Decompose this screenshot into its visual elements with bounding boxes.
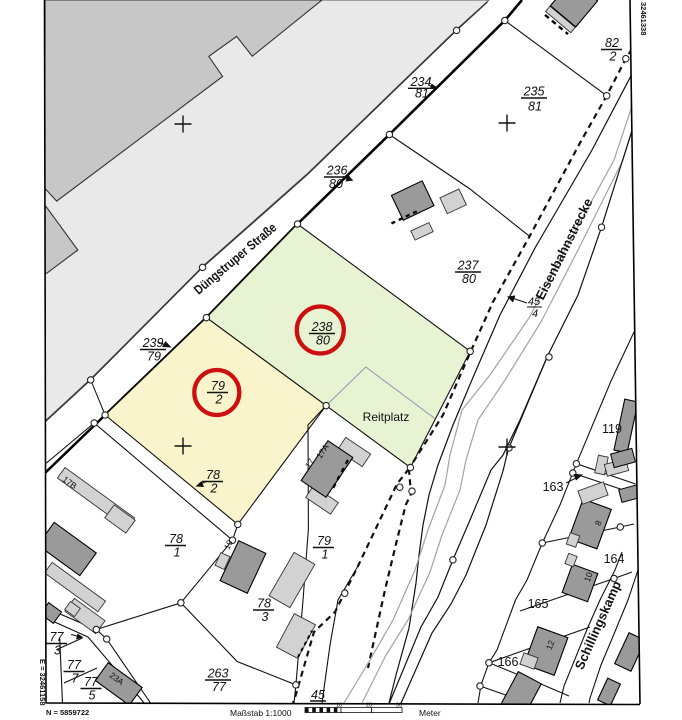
svg-text:236: 236 — [326, 164, 348, 178]
svg-text:77: 77 — [67, 658, 82, 672]
svg-text:4: 4 — [532, 308, 538, 320]
svg-text:45: 45 — [311, 688, 325, 702]
svg-text:Maßstab 1:1000: Maßstab 1:1000 — [230, 708, 292, 718]
svg-text:77: 77 — [50, 630, 65, 644]
svg-text:5: 5 — [89, 689, 96, 703]
svg-text:1: 1 — [174, 546, 181, 560]
svg-text:2: 2 — [609, 50, 617, 64]
svg-text:237: 237 — [457, 259, 480, 273]
svg-text:3: 3 — [54, 644, 61, 658]
svg-text:30: 30 — [396, 703, 402, 709]
svg-text:79: 79 — [317, 534, 331, 548]
svg-text:80: 80 — [329, 177, 343, 191]
svg-text:166: 166 — [498, 655, 519, 669]
svg-text:79: 79 — [147, 350, 161, 364]
svg-text:82: 82 — [605, 36, 619, 50]
svg-text:81: 81 — [415, 87, 429, 101]
svg-text:119: 119 — [602, 422, 622, 436]
svg-text:78: 78 — [169, 532, 183, 546]
svg-text:32461338: 32461338 — [639, 2, 648, 35]
svg-text:7: 7 — [72, 672, 80, 686]
svg-text:1: 1 — [322, 548, 329, 562]
svg-text:238: 238 — [311, 320, 333, 334]
svg-text:78: 78 — [257, 597, 271, 611]
svg-text:81: 81 — [528, 100, 542, 114]
svg-text:2: 2 — [215, 393, 223, 407]
svg-text:165: 165 — [528, 597, 549, 611]
svg-text:10: 10 — [336, 703, 342, 709]
svg-text:80: 80 — [316, 334, 330, 348]
svg-text:77: 77 — [212, 680, 227, 694]
svg-text:80: 80 — [462, 272, 476, 286]
svg-text:20: 20 — [366, 703, 372, 709]
svg-text:77: 77 — [84, 675, 99, 689]
svg-text:3: 3 — [262, 610, 269, 624]
svg-text:263: 263 — [207, 667, 229, 681]
svg-text:79: 79 — [211, 379, 225, 393]
svg-text:163: 163 — [543, 480, 564, 494]
svg-text:164: 164 — [604, 552, 625, 566]
svg-text:78: 78 — [206, 468, 220, 482]
svg-text:E = 32461158: E = 32461158 — [38, 659, 47, 706]
svg-text:Meter: Meter — [419, 708, 441, 718]
svg-text:N = 5859722: N = 5859722 — [46, 708, 89, 717]
svg-text:2: 2 — [210, 482, 218, 496]
svg-text:235: 235 — [523, 85, 545, 99]
svg-text:Reitplatz: Reitplatz — [363, 410, 410, 424]
